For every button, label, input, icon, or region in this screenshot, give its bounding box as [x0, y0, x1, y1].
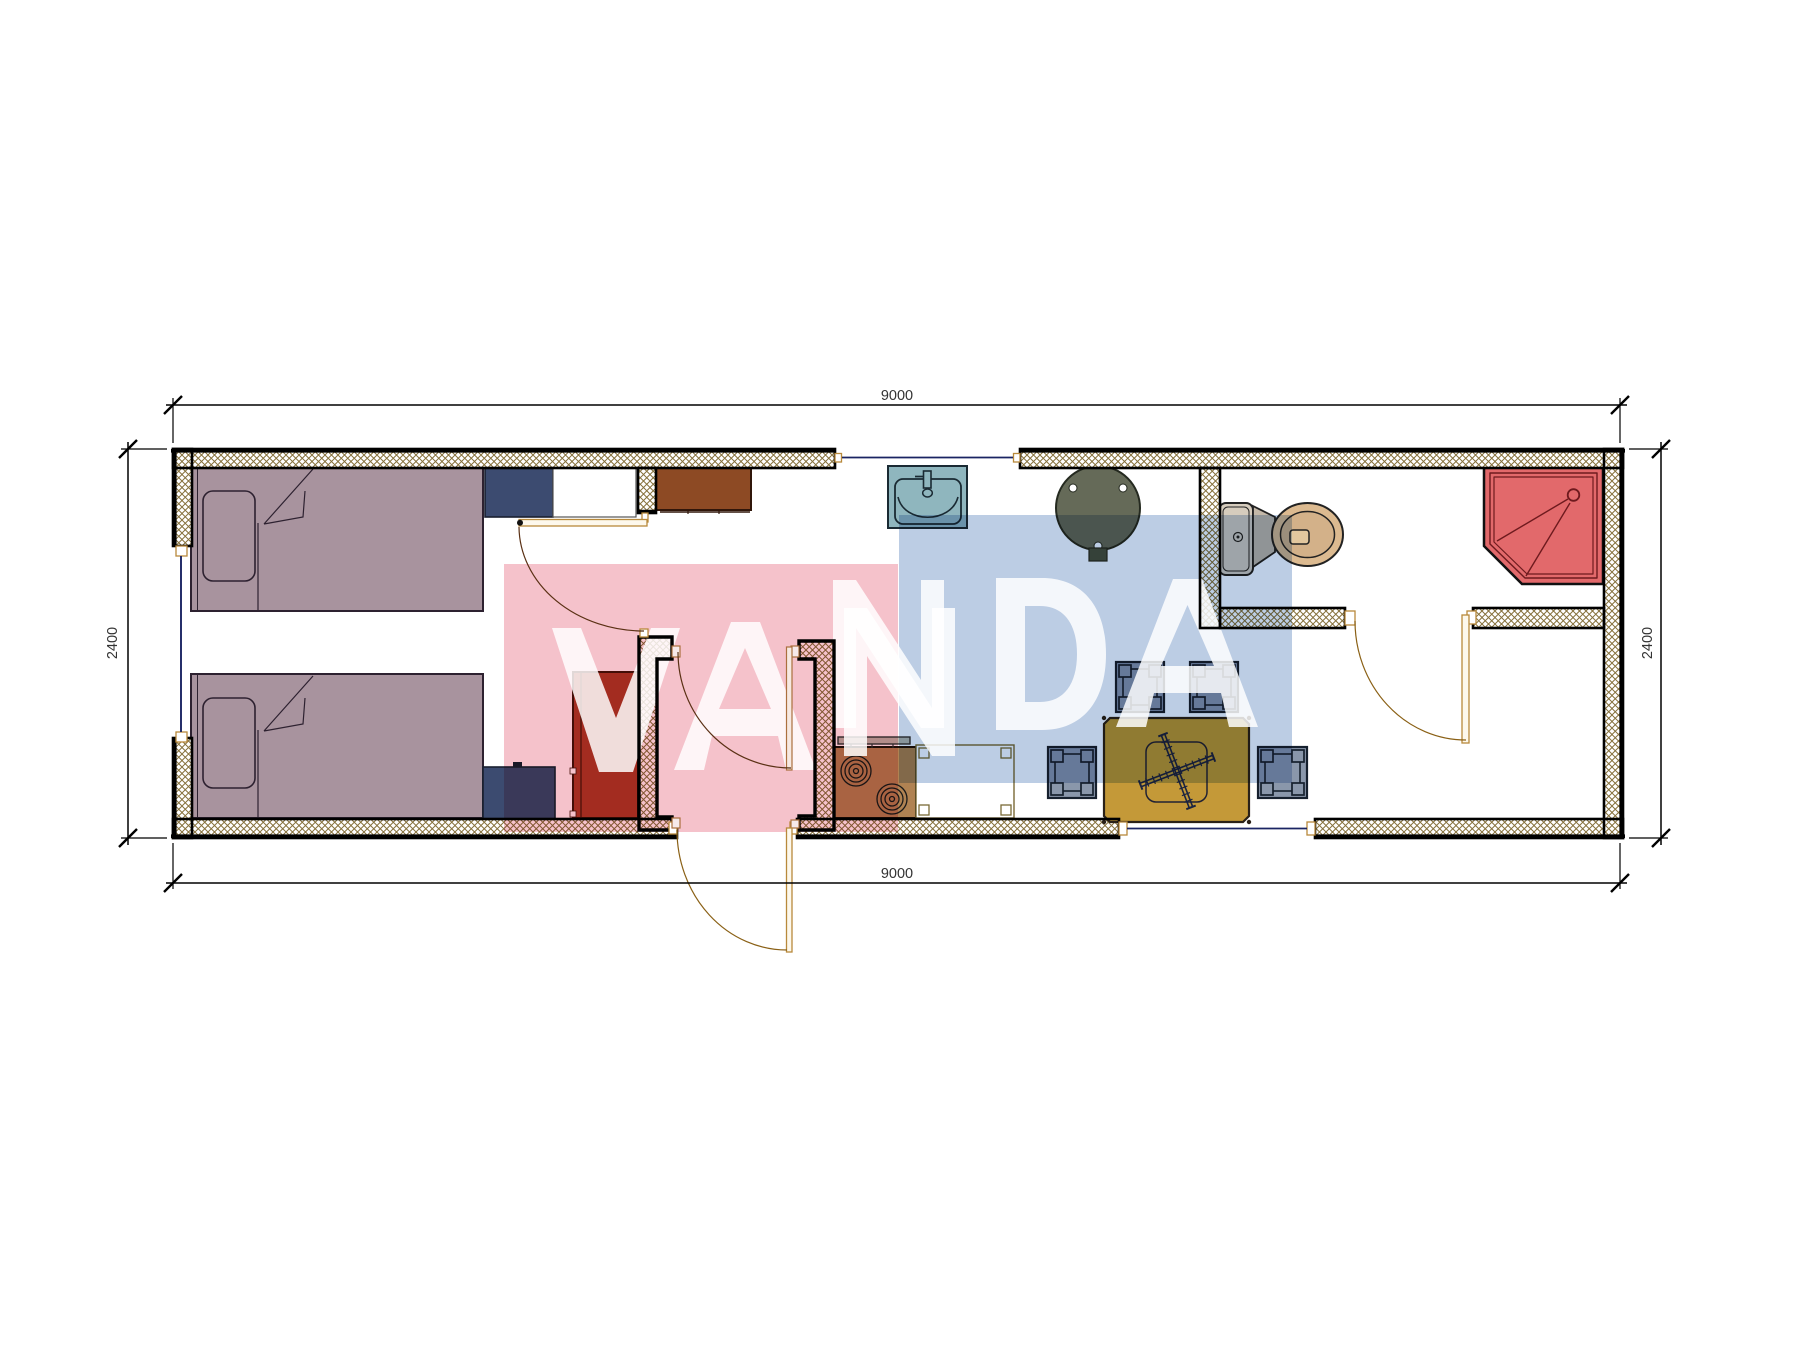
svg-text:2400: 2400 — [1640, 627, 1656, 659]
svg-text:9000: 9000 — [881, 866, 913, 882]
svg-text:9000: 9000 — [881, 388, 913, 404]
svg-text:2400: 2400 — [105, 627, 121, 659]
